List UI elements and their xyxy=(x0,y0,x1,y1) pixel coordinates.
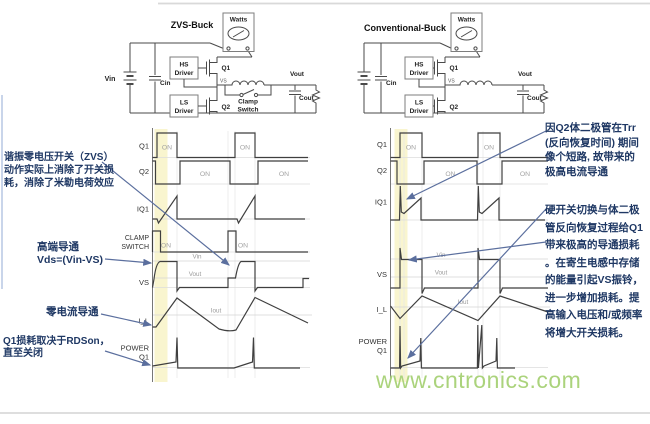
iout-ref-label: Iout xyxy=(211,308,222,315)
zvs-buck-title: ZVS-Buck xyxy=(171,20,215,30)
annotation-line: 高输入电压和/或频率 xyxy=(545,307,649,325)
row-label-iq1: IQ1 xyxy=(137,205,149,214)
row-label-iq1: IQ1 xyxy=(375,198,387,207)
row-label-q1: Q1 xyxy=(139,142,149,151)
row-label-q2: Q2 xyxy=(377,166,387,175)
vout-ref-label: Vout xyxy=(435,270,448,277)
q1-mosfet-icon xyxy=(433,57,445,85)
clamp-switch-label-1: Clamp xyxy=(238,99,258,106)
on-label: ON xyxy=(520,171,530,178)
vout-label: Vout xyxy=(290,71,305,78)
annotation-line: Vds=(Vin-VS) xyxy=(37,254,127,267)
vs-node-label: VS xyxy=(220,79,227,85)
vs-waveform xyxy=(391,248,549,294)
row-label-clamp-1: CLAMP xyxy=(125,235,149,242)
row-label-il: I_L xyxy=(377,305,387,314)
q2-label: Q2 xyxy=(222,104,231,111)
cin-label: Cin xyxy=(160,80,171,87)
annotation-line: 进一步增加损耗。提 xyxy=(545,290,649,308)
on-label: ON xyxy=(445,171,455,178)
conventional-waveform-panel: Q1 Q2 IQ1 VS I_L POWER Q1 ON ON ON ON Vi… xyxy=(359,128,550,382)
row-label-vs: VS xyxy=(377,270,387,279)
inductor-icon xyxy=(445,81,544,85)
annotation-line: 耗，消除了米勒电荷效应 xyxy=(4,177,136,190)
clamp-switch-icon xyxy=(225,85,271,97)
q1-label: Q1 xyxy=(450,65,459,72)
cin-label: Cin xyxy=(386,80,397,87)
vin-ref-label: Vin xyxy=(193,254,202,261)
annotation-arrow xyxy=(407,131,546,199)
annotation-line: 硬开关切换与体二极 xyxy=(545,202,649,220)
annotation-line: 。在寄生电感中存储 xyxy=(545,255,649,273)
q2-label: Q2 xyxy=(450,104,459,111)
clamp-waveform xyxy=(153,231,309,252)
on-label: ON xyxy=(200,171,210,178)
watts-label: Watts xyxy=(458,17,476,24)
row-label-power-1: POWER xyxy=(121,344,150,353)
annotation-line: 因Q2体二极管在Trr xyxy=(545,121,649,136)
row-label-power-2: Q1 xyxy=(139,353,149,362)
annotation-line: 管反向恢复过程给Q1 xyxy=(545,220,649,238)
on-label: ON xyxy=(238,243,248,250)
vout-ref-label: Vout xyxy=(189,271,202,278)
on-label: ON xyxy=(406,145,416,152)
on-label: ON xyxy=(162,145,172,152)
watermark: www.cntronics.com xyxy=(376,367,581,394)
annotation-line: 高端导通 xyxy=(37,241,127,254)
row-label-vs: VS xyxy=(139,278,149,287)
diagram-canvas: ZVS-Buck Vin Cin HS Driver Q1 xyxy=(0,0,650,424)
zvs-buck-circuit: ZVS-Buck Vin Cin HS Driver Q1 xyxy=(105,13,320,117)
il-waveform xyxy=(391,296,549,321)
annotation-hard-switch: 硬开关切换与体二极 管反向恢复过程给Q1 带来极高的导通损耗 。在寄生电感中存储… xyxy=(545,202,649,342)
annotation-rdson: Q1损耗取决于RDSon， 直至关闭 xyxy=(3,336,113,360)
annotation-trr: 因Q2体二极管在Trr (反向恢复时间) 期间 像个短路, 故带来的 极高电流导… xyxy=(545,121,649,179)
ls-driver-label-2: Driver xyxy=(410,108,429,115)
hs-driver-label-1: HS xyxy=(179,62,189,69)
conventional-buck-title: Conventional-Buck xyxy=(364,23,447,33)
annotation-line: 带来极高的导通损耗 xyxy=(545,237,649,255)
annotation-line: (反向恢复时间) 期间 xyxy=(545,136,649,151)
q1-waveform xyxy=(153,133,309,158)
clamp-switch-label-2: Switch xyxy=(238,107,259,114)
row-label-power-2: Q1 xyxy=(377,346,387,355)
cin-capacitor-icon xyxy=(375,43,387,113)
vs-waveform xyxy=(153,262,310,292)
annotation-line: 将增大开关损耗。 xyxy=(545,325,649,343)
row-label-q1: Q1 xyxy=(377,140,387,149)
vin-label: Vin xyxy=(105,76,116,83)
conventional-buck-circuit: Conventional-Buck Cin HS Driver Q1 Watts xyxy=(358,13,548,117)
vs-node-label: VS xyxy=(448,79,455,85)
ls-driver-label-2: Driver xyxy=(175,108,194,115)
on-label: ON xyxy=(240,145,250,152)
power-q1-waveform xyxy=(391,325,516,368)
on-label: ON xyxy=(161,243,171,250)
row-label-power-1: POWER xyxy=(359,337,388,346)
annotation-zvs: 谐振零电压开关（ZVS） 动作实际上消除了开关损 耗，消除了米勒电荷效应 xyxy=(4,151,136,190)
hs-driver-label-1: HS xyxy=(414,62,424,69)
annotation-line: 像个短路, 故带来的 xyxy=(545,150,649,165)
on-label: ON xyxy=(484,145,494,152)
annotation-line: 极高电流导通 xyxy=(545,165,649,180)
q2-mosfet-icon xyxy=(198,85,217,115)
iq1-waveform xyxy=(391,186,546,220)
inductor-icon xyxy=(217,81,316,85)
row-label-q2: Q2 xyxy=(139,167,149,176)
on-label: ON xyxy=(279,171,289,178)
annotation-line: 谐振零电压开关（ZVS） xyxy=(4,151,136,164)
ls-driver-label-1: LS xyxy=(180,100,189,107)
annotation-line: 的能量引起VS振铃， xyxy=(545,272,649,290)
vout-label: Vout xyxy=(518,71,533,78)
il-waveform xyxy=(153,298,309,331)
annotation-line: Q1损耗取决于RDSon， xyxy=(3,336,113,348)
battery-icon xyxy=(124,72,137,84)
power-q1-waveform xyxy=(153,338,301,369)
zvs-transition-highlight xyxy=(155,129,168,382)
annotation-zero-current: 零电流导通 xyxy=(46,306,116,319)
q1-mosfet-icon xyxy=(198,57,217,85)
annotation-line: 直至关闭 xyxy=(3,348,113,360)
annotation-arrow xyxy=(408,209,546,358)
battery-icon xyxy=(358,72,371,84)
annotation-high-side: 高端导通 Vds=(Vin-VS) xyxy=(37,241,127,267)
annotation-line: 零电流导通 xyxy=(46,306,116,319)
hs-driver-label-2: Driver xyxy=(410,70,429,77)
q1-label: Q1 xyxy=(222,65,231,72)
ls-driver-label-1: LS xyxy=(415,100,424,107)
q2-mosfet-icon xyxy=(433,85,445,115)
annotation-line: 动作实际上消除了开关损 xyxy=(4,164,136,177)
watts-label: Watts xyxy=(230,17,248,24)
cin-capacitor-icon xyxy=(149,43,161,113)
hs-driver-label-2: Driver xyxy=(175,70,194,77)
